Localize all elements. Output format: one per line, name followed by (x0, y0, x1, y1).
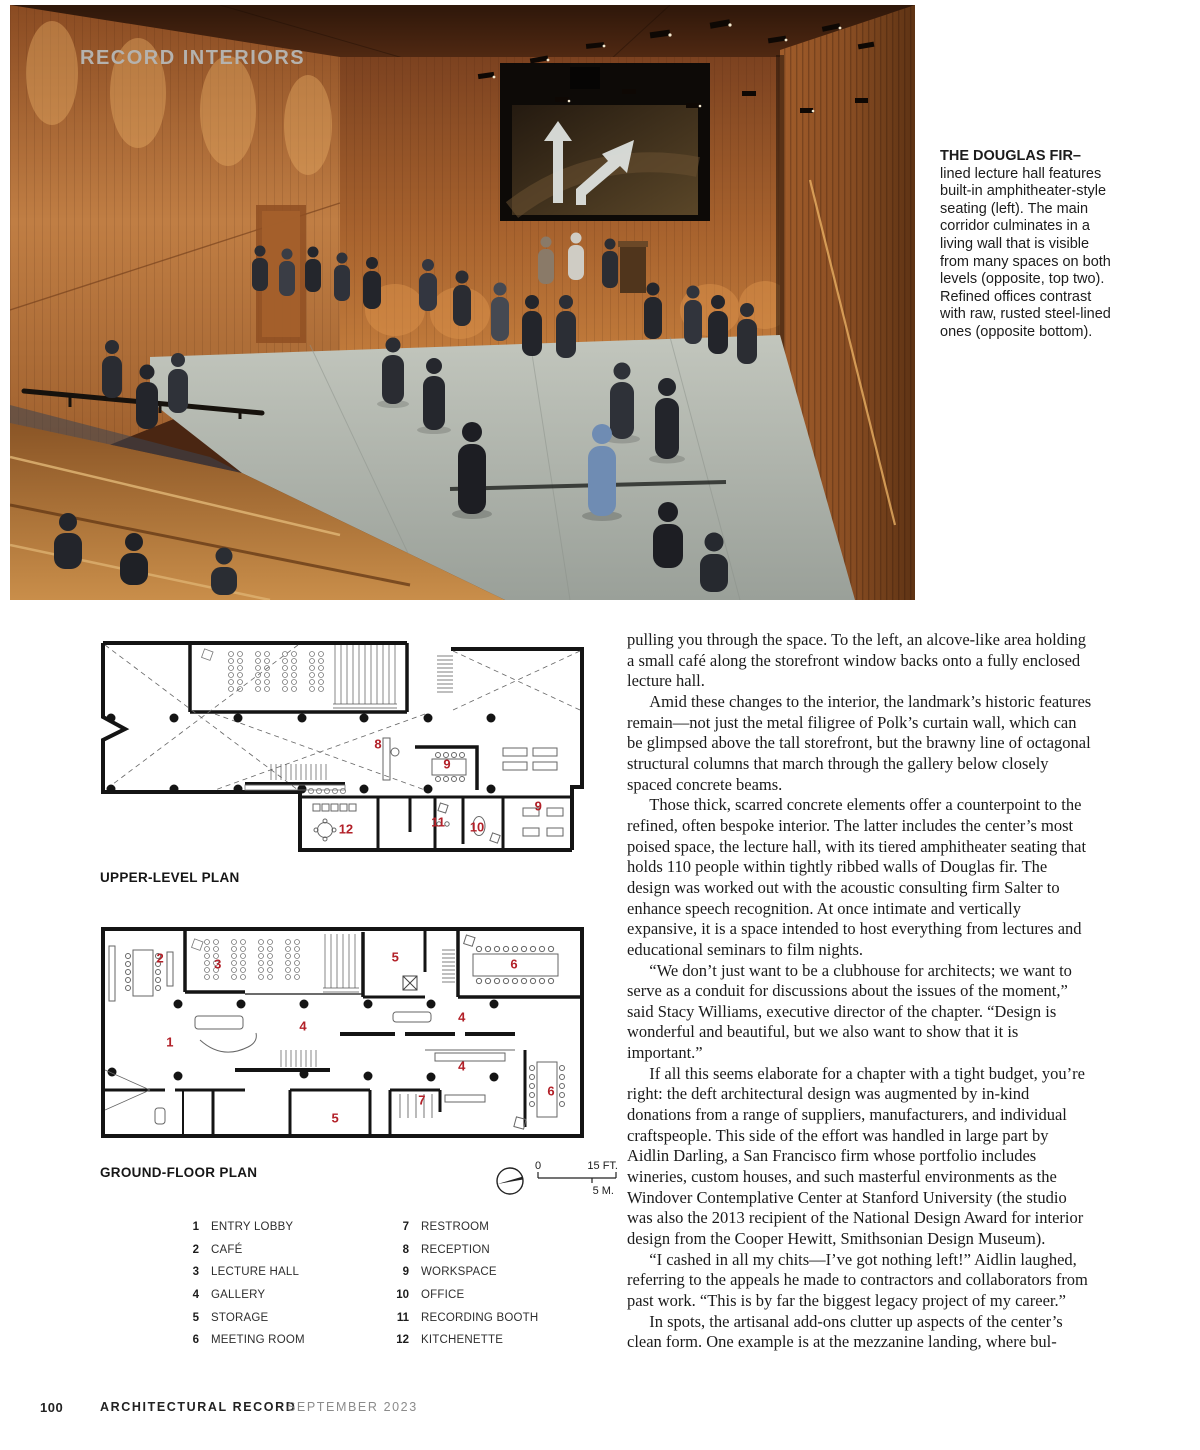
legend-number: 11 (393, 1312, 409, 1324)
legend-number: 10 (393, 1289, 409, 1301)
footer-magazine-name: ARCHITECTURAL RECORD (100, 1400, 296, 1414)
legend-number: 2 (183, 1244, 199, 1256)
legend-item: 6MEETING ROOM (183, 1329, 393, 1352)
plan-room-number: 1 (166, 1035, 173, 1050)
article-paragraph: pulling you through the space. To the le… (627, 630, 1093, 692)
legend-item: 2CAFÉ (183, 1239, 393, 1262)
plan-room-number: 4 (458, 1010, 465, 1025)
plan-room-number: 3 (214, 956, 221, 971)
upper-level-plan: 899111012 (95, 632, 588, 860)
photo-caption: THE DOUGLAS FIR– lined lecture hall feat… (940, 148, 1112, 342)
plan-room-number: 12 (339, 821, 353, 836)
plan-room-number: 5 (392, 950, 399, 965)
plan-room-number: 11 (431, 814, 445, 829)
article-paragraph: Those thick, scarred concrete elements o… (627, 795, 1093, 960)
ground-plan-drawing (95, 922, 588, 1144)
legend-label: LECTURE HALL (211, 1266, 299, 1278)
article-paragraph: Amid these changes to the interior, the … (627, 692, 1093, 795)
legend-item: 9WORKSPACE (393, 1261, 603, 1284)
legend-label: GALLERY (211, 1289, 265, 1301)
legend-label: WORKSPACE (421, 1266, 497, 1278)
plan-room-number: 5 (331, 1111, 338, 1126)
legend-item: 3LECTURE HALL (183, 1261, 393, 1284)
legend-item: 7RESTROOM (393, 1216, 603, 1239)
legend-label: STORAGE (211, 1312, 268, 1324)
footer-issue-date: SEPTEMBER 2023 (287, 1400, 418, 1414)
scale-feet: 15 FT. (587, 1160, 618, 1172)
legend-number: 7 (393, 1221, 409, 1233)
legend-item: 11RECORDING BOOTH (393, 1306, 603, 1329)
legend-number: 12 (393, 1334, 409, 1346)
scale-meters: 5 M. (593, 1185, 614, 1197)
scale-bar: 0 15 FT. 5 M. (488, 1156, 628, 1202)
lecture-hall-illustration (10, 5, 915, 600)
legend-label: CAFÉ (211, 1244, 242, 1256)
legend-item: 8RECEPTION (393, 1239, 603, 1262)
plan-room-number: 6 (547, 1083, 554, 1098)
plan-room-number: 4 (299, 1018, 306, 1033)
ground-plan-title: GROUND-FLOOR PLAN (100, 1165, 257, 1180)
magazine-page: RECORD INTERIORS THE DOUGLAS FIR– lined … (0, 0, 1200, 1450)
upper-plan-title: UPPER-LEVEL PLAN (100, 870, 240, 885)
plan-legend: 1ENTRY LOBBY2CAFÉ3LECTURE HALL4GALLERY5S… (183, 1216, 603, 1352)
article-paragraph: In spots, the artisanal add-ons clutter … (627, 1312, 1093, 1353)
legend-item: 5STORAGE (183, 1306, 393, 1329)
legend-number: 3 (183, 1266, 199, 1278)
legend-item: 10OFFICE (393, 1284, 603, 1307)
legend-number: 8 (393, 1244, 409, 1256)
caption-lead: THE DOUGLAS FIR– (940, 148, 1081, 164)
plan-room-number: 2 (156, 950, 163, 965)
plan-room-number: 8 (374, 736, 381, 751)
ground-floor-plan: 23564414675 (95, 922, 588, 1144)
legend-item: 1ENTRY LOBBY (183, 1216, 393, 1239)
article-column: pulling you through the space. To the le… (627, 630, 1093, 1353)
legend-column-right: 7RESTROOM8RECEPTION9WORKSPACE10OFFICE11R… (393, 1216, 603, 1352)
legend-label: ENTRY LOBBY (211, 1221, 293, 1233)
legend-label: RESTROOM (421, 1221, 489, 1233)
north-arrow-icon (497, 1168, 523, 1194)
article-paragraph: “I cashed in all my chits—I’ve got nothi… (627, 1250, 1093, 1312)
plan-room-number: 6 (510, 956, 517, 971)
lecture-hall-photo: RECORD INTERIORS (10, 5, 915, 600)
legend-label: RECORDING BOOTH (421, 1312, 538, 1324)
plan-room-number: 4 (458, 1059, 465, 1074)
footer-page-number: 100 (40, 1400, 63, 1415)
section-kicker: RECORD INTERIORS (80, 47, 305, 70)
legend-number: 5 (183, 1312, 199, 1324)
legend-label: OFFICE (421, 1289, 464, 1301)
legend-label: MEETING ROOM (211, 1334, 305, 1346)
legend-number: 9 (393, 1266, 409, 1278)
scale-zero: 0 (535, 1160, 541, 1172)
caption-body: lined lecture hall features built-in amp… (940, 166, 1111, 340)
page-footer: 100 ARCHITECTURAL RECORD SEPTEMBER 2023 (0, 1400, 1200, 1420)
legend-number: 1 (183, 1221, 199, 1233)
legend-label: KITCHENETTE (421, 1334, 503, 1346)
plan-room-number: 9 (535, 798, 542, 813)
legend-item: 12KITCHENETTE (393, 1329, 603, 1352)
legend-item: 4GALLERY (183, 1284, 393, 1307)
plan-room-number: 9 (443, 757, 450, 772)
legend-label: RECEPTION (421, 1244, 490, 1256)
article-paragraph: If all this seems elaborate for a chapte… (627, 1064, 1093, 1250)
legend-column-left: 1ENTRY LOBBY2CAFÉ3LECTURE HALL4GALLERY5S… (183, 1216, 393, 1352)
plan-room-number: 7 (418, 1093, 425, 1108)
legend-number: 6 (183, 1334, 199, 1346)
legend-number: 4 (183, 1289, 199, 1301)
article-paragraph: “We don’t just want to be a clubhouse fo… (627, 961, 1093, 1064)
plan-room-number: 10 (470, 819, 484, 834)
